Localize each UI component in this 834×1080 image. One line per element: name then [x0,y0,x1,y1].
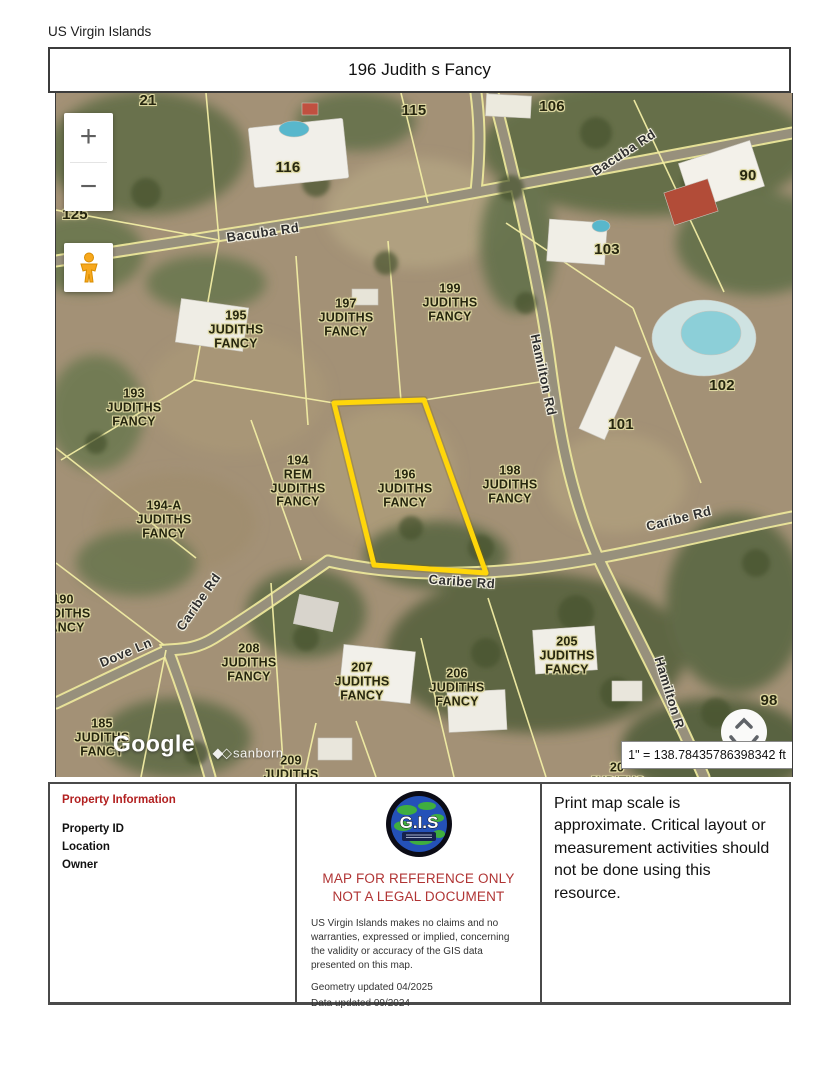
region-label: US Virgin Islands [48,24,151,39]
satellite-map-art [56,93,792,777]
page-title: 196 Judith s Fancy [348,60,491,80]
zoom-in-button[interactable]: + [64,113,113,162]
title-box: 196 Judith s Fancy [48,47,791,93]
gis-disclaimer-cell: G.I.S MAP FOR REFERENCE ONLY NOT A LEGAL… [297,784,542,1002]
footer-panel: Property Information Property IDLocation… [48,782,791,1005]
gis-logo-text: G.I.S [399,813,438,832]
map-scale-box: 1" = 138.78435786398342 ft [621,741,793,769]
sanborn-attribution: ◆◇sanborn [212,745,283,762]
scale-note-cell: Print map scale is approximate. Critical… [542,784,789,1002]
property-field-label: Location [62,839,283,857]
property-fields: Property IDLocationOwner [62,821,283,874]
data-updated: Data updated 09/2024 [311,998,526,1009]
map-scale-text: 1" = 138.78435786398342 ft [628,748,786,762]
sanborn-icon: ◆◇ [212,745,230,761]
map-warning: MAP FOR REFERENCE ONLY NOT A LEGAL DOCUM… [311,870,526,906]
scale-note-text: Print map scale is approximate. Critical… [554,793,777,905]
pegman-icon [75,251,103,285]
print-page: US Virgin Islands 196 Judith s Fancy [0,0,834,1080]
warning-line-1: MAP FOR REFERENCE ONLY [311,870,526,888]
property-info-heading: Property Information [62,794,283,806]
zoom-control: + − [64,113,113,211]
gis-logo: G.I.S [385,790,453,858]
property-info-cell: Property Information Property IDLocation… [50,784,297,1002]
warning-line-2: NOT A LEGAL DOCUMENT [311,888,526,906]
geometry-updated: Geometry updated 04/2025 [311,982,526,993]
pegman-button[interactable] [64,243,113,292]
zoom-out-button[interactable]: − [64,163,113,212]
map-viewport[interactable]: 2111510611690125103195 JUDITHS FANCY197 … [55,93,793,777]
property-field-label: Owner [62,857,283,875]
gis-disclaimer-text: US Virgin Islands makes no claims and no… [311,917,526,972]
google-logo[interactable]: Google [113,731,195,758]
property-field-label: Property ID [62,821,283,839]
